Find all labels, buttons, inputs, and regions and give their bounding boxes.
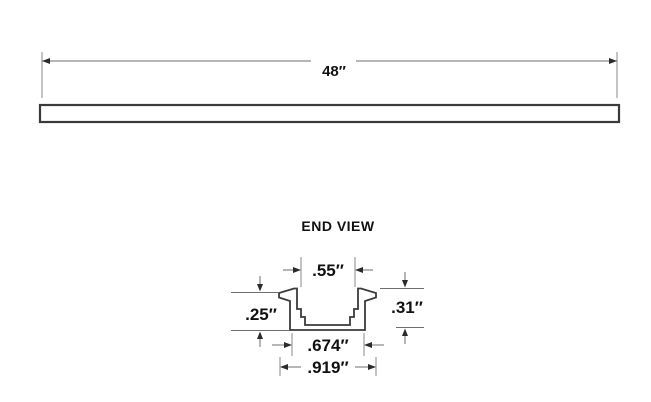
dim-55-arrowhead-right (355, 267, 363, 273)
dim-25-arrowhead-up (257, 332, 263, 340)
dim-left-height: .25″ (231, 276, 289, 347)
dim-674-label: .674″ (307, 336, 348, 355)
end-view-drawing: .55″ .25″ .31″ (231, 257, 424, 377)
dim-919-arrowhead-left (280, 364, 288, 370)
dim-919-arrowhead-right (368, 364, 376, 370)
channel-profile-outline (279, 289, 376, 331)
dim-55-arrowhead-left (293, 267, 301, 273)
dim-674-arrowhead-right (364, 342, 372, 348)
dim-48-arrowhead-right (609, 58, 617, 64)
dim-31-label: .31″ (391, 298, 423, 317)
bar-profile-rect (40, 105, 619, 122)
end-view-title: END VIEW (301, 218, 375, 234)
dim-31-arrowhead-down (402, 280, 408, 288)
dim-48-arrowhead-left (42, 58, 50, 64)
dim-48-label: 48″ (322, 63, 346, 80)
dim-overall-width: .919″ (280, 357, 376, 377)
technical-drawing-page: 48″ END VIEW .55″ (0, 0, 651, 402)
dim-25-arrowhead-down (257, 284, 263, 292)
dim-25-label: .25″ (245, 305, 277, 324)
dim-31-arrowhead-up (402, 329, 408, 337)
dim-674-arrowhead-left (284, 342, 292, 348)
drawing-canvas: 48″ END VIEW .55″ (0, 0, 651, 402)
dim-opening-width: .55″ (283, 257, 373, 287)
top-view-drawing: 48″ (40, 52, 619, 122)
dim-55-label: .55″ (312, 261, 344, 280)
dim-right-height: .31″ (380, 272, 424, 344)
dim-inner-width: .674″ (272, 333, 384, 356)
dim-919-label: .919″ (307, 358, 348, 377)
